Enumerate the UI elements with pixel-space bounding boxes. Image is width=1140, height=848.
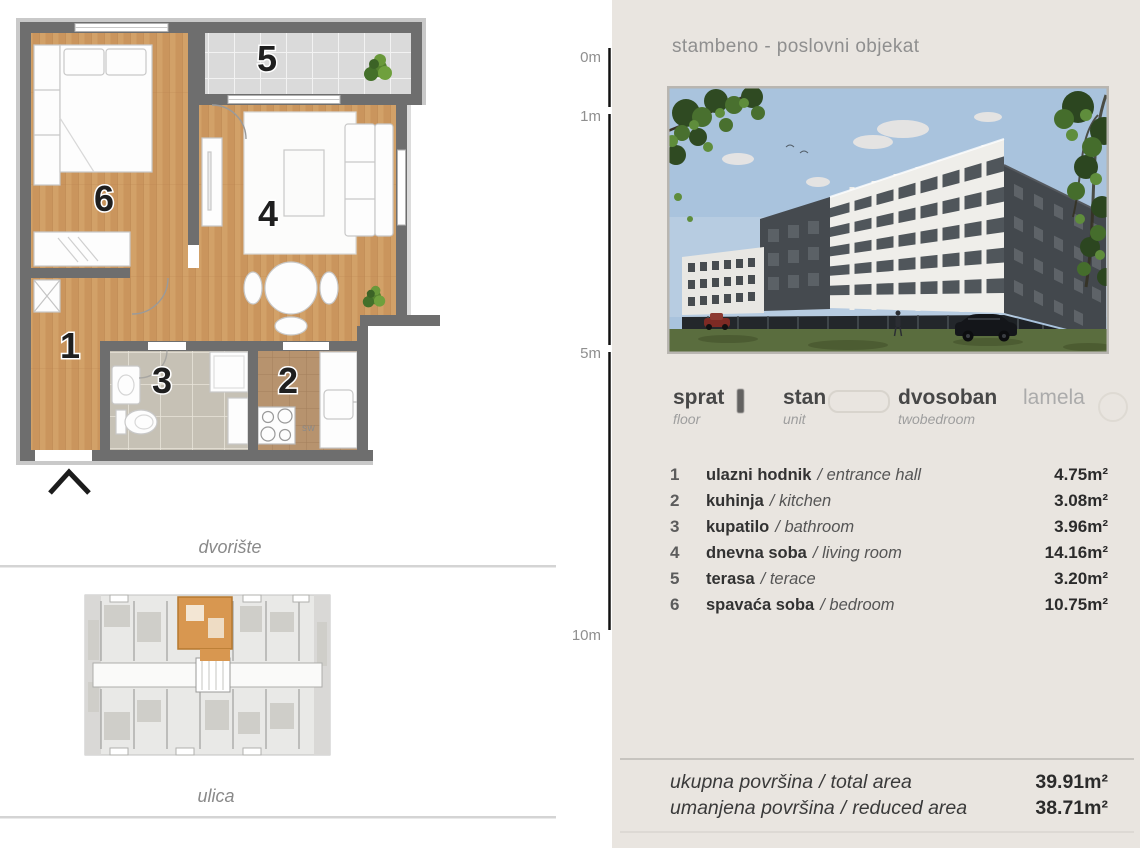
room-number-living: 4 xyxy=(258,193,278,234)
room-list: 1 ulazni hodnik / entrance hall 4.75m² 2… xyxy=(670,462,1108,618)
blurred-lamela-value xyxy=(1098,392,1128,422)
info-panel: stambeno - poslovni objekat xyxy=(612,0,1140,848)
room-num: 4 xyxy=(670,540,692,566)
divider-line xyxy=(620,831,1134,833)
wardrobe xyxy=(34,45,60,185)
type-label: dvosoban xyxy=(898,386,997,410)
entrance-arrow-icon xyxy=(50,472,89,493)
room-name: kupatilo xyxy=(706,514,769,540)
divider-line xyxy=(0,565,556,568)
divider-line xyxy=(620,758,1134,760)
room-num: 2 xyxy=(670,488,692,514)
unit-label: stan xyxy=(783,386,826,410)
listing-image: sw xyxy=(0,0,1140,848)
room-row: 6 spavaća soba / bedroom 10.75m² xyxy=(670,592,1108,618)
room-row: 1 ulazni hodnik / entrance hall 4.75m² xyxy=(670,462,1108,488)
sofa-back xyxy=(375,124,393,236)
room-row: 5 terasa / terace 3.20m² xyxy=(670,566,1108,592)
sink xyxy=(112,366,140,404)
blurred-unit-value xyxy=(828,390,890,413)
ruler-mark-10m: 10m xyxy=(572,627,601,644)
building-level-plan xyxy=(85,595,330,755)
divider-line xyxy=(0,816,556,819)
room-row: 2 kuhinja / kitchen 3.08m² xyxy=(670,488,1108,514)
room-row: 4 dnevna soba / living room 14.16m² xyxy=(670,540,1108,566)
room-name: terasa xyxy=(706,566,755,592)
room-area: 3.20m² xyxy=(1054,566,1108,592)
room-name: dnevna soba xyxy=(706,540,807,566)
ruler-mark-1m: 1m xyxy=(580,108,601,125)
room-area: 3.96m² xyxy=(1054,514,1108,540)
dresser xyxy=(34,232,130,266)
room-name: ulazni hodnik xyxy=(706,462,811,488)
pillow xyxy=(106,49,146,75)
total-row: ukupna površina / total area 39.91m² xyxy=(670,769,1108,795)
sofa-seat xyxy=(345,124,375,236)
room-area: 14.16m² xyxy=(1045,540,1108,566)
room-number-bedroom: 6 xyxy=(94,178,114,219)
floor-plan-panel: sw xyxy=(0,0,612,848)
room-number-bath: 3 xyxy=(152,360,172,401)
total-label: umanjena površina xyxy=(670,795,835,821)
room-row: 3 kupatilo / bathroom 3.96m² xyxy=(670,514,1108,540)
room-name: kuhinja xyxy=(706,488,764,514)
tv-stand xyxy=(202,138,222,226)
total-value: 38.71m² xyxy=(1035,795,1108,821)
total-label-en: total area xyxy=(831,769,912,795)
lamela-label: lamela xyxy=(1023,386,1085,410)
apartment-floor-plan: sw xyxy=(16,18,440,493)
page-title: stambeno - poslovni objekat xyxy=(672,36,919,58)
total-label: ukupna površina xyxy=(670,769,813,795)
total-value: 39.91m² xyxy=(1035,769,1108,795)
building-photo xyxy=(668,87,1108,353)
room-num: 6 xyxy=(670,592,692,618)
chair xyxy=(320,272,338,304)
room-name-en: / kitchen xyxy=(770,488,831,514)
room-name: spavaća soba xyxy=(706,592,814,618)
room-number-kitchen: 2 xyxy=(278,360,298,401)
toilet xyxy=(125,410,157,434)
stair-core xyxy=(196,658,230,692)
floor-sublabel: floor xyxy=(673,411,700,427)
total-row: umanjena površina / reduced area 38.71m² xyxy=(670,795,1108,821)
type-sublabel: twobedroom xyxy=(898,411,975,427)
ruler-mark-0m: 0m xyxy=(580,49,601,66)
room-name-en: / bedroom xyxy=(820,592,894,618)
courtyard-label: dvorište xyxy=(198,537,261,557)
scale-ruler: 0m 1m 5m 10m xyxy=(572,48,610,644)
room-number-hall: 1 xyxy=(60,325,80,366)
room-name-en: / entrance hall xyxy=(817,462,921,488)
room-area: 3.08m² xyxy=(1054,488,1108,514)
total-label-en: reduced area xyxy=(852,795,967,821)
room-name-en: / bathroom xyxy=(775,514,854,540)
room-number-terrace: 5 xyxy=(257,38,277,79)
room-num: 3 xyxy=(670,514,692,540)
blurred-floor-value xyxy=(737,389,744,413)
washer-label: sw xyxy=(302,423,316,434)
room-num: 5 xyxy=(670,566,692,592)
unit-sublabel: unit xyxy=(783,411,806,427)
chair xyxy=(275,317,307,335)
room-name-en: / terace xyxy=(761,566,816,592)
fridge xyxy=(324,390,353,419)
floor-label: sprat xyxy=(673,386,724,410)
bath-cabinet xyxy=(228,398,248,444)
coffee-table xyxy=(284,150,324,216)
chair xyxy=(244,272,262,304)
shower xyxy=(210,352,248,392)
street-label: ulica xyxy=(197,786,234,806)
pillow xyxy=(64,49,104,75)
totals: ukupna površina / total area 39.91m² uma… xyxy=(670,769,1108,821)
ruler-mark-5m: 5m xyxy=(580,345,601,362)
room-area: 10.75m² xyxy=(1045,592,1108,618)
room-area: 4.75m² xyxy=(1054,462,1108,488)
room-name-en: / living room xyxy=(813,540,902,566)
dining-table xyxy=(265,262,317,314)
room-num: 1 xyxy=(670,462,692,488)
